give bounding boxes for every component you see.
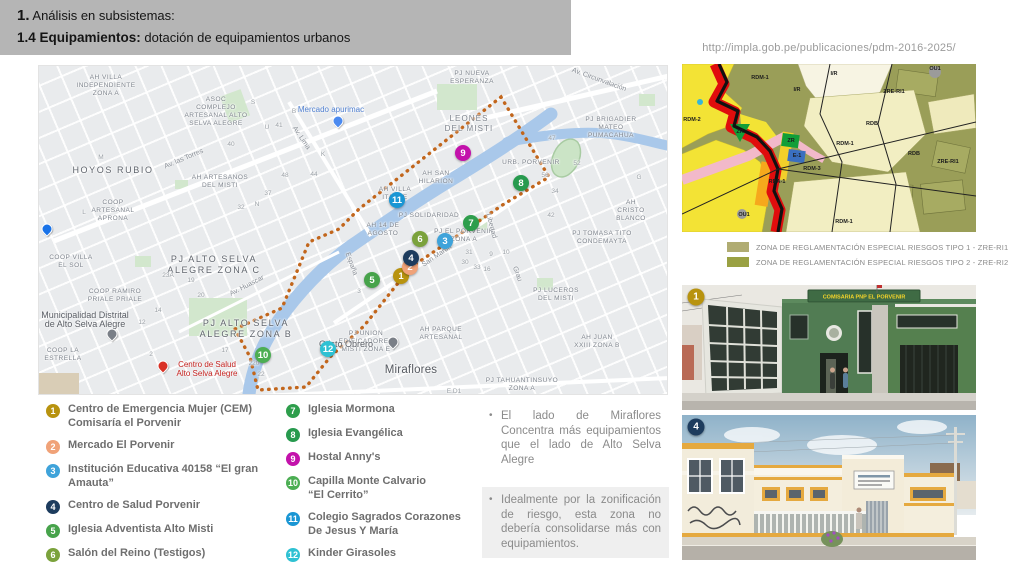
map-area-label: 14	[154, 307, 161, 315]
map-marker-6: 6	[412, 231, 428, 247]
legend-item-number: 3	[46, 464, 60, 478]
zoning-zone-label: E-1	[793, 153, 802, 159]
map-area-label: COOP VILLA EL SOL	[49, 254, 93, 270]
map-area-label: 44	[310, 171, 317, 179]
legend-item: 12Kinder Girasoles	[286, 547, 481, 562]
map-area-label: PJ LUCEROS DEL MISTI	[533, 287, 579, 303]
map-poi-label: Centro de Salud Alto Selva Alegre	[177, 360, 238, 378]
map-area-label: 19	[187, 277, 194, 285]
map-area-label: N	[255, 201, 260, 209]
header-number-1: 1.	[17, 7, 30, 24]
map-area-label: PJ SOLIDARIDAD	[399, 212, 459, 220]
map-area-label: 3	[357, 288, 361, 296]
map-marker-5: 5	[364, 272, 380, 288]
zoning-legend-text: ZONA DE REGLAMENTACIÓN ESPECIAL RIESGOS …	[756, 243, 1008, 252]
map-area-label: Miraflores	[385, 364, 437, 376]
map-poi-label: Mercado apurimac	[298, 105, 364, 114]
map-area-label: 41	[275, 122, 282, 130]
map-area-label: 34	[551, 188, 558, 196]
legend-item-number: 1	[46, 404, 60, 418]
photo-centro-salud-image	[682, 415, 976, 560]
zoning-legend-swatch	[727, 257, 749, 267]
zoning-zone-label: OU1	[929, 66, 940, 72]
map-area-label: 42	[547, 212, 554, 220]
zoning-zone-label: I/R	[830, 71, 837, 77]
city-map: AH VILLA INDEPENDIENTE ZONA AASOC COMPLE…	[38, 65, 668, 395]
map-area-label: PJ ALTO SELVA ALEGRE ZONA C	[167, 254, 260, 276]
zoning-zone-label: RDM-1	[835, 219, 852, 225]
legend-item-text: Capilla Monte Calvario“El Cerrito”	[308, 475, 426, 502]
map-area-label: PJ ALTO SELVA ALEGRE ZONA B	[200, 318, 293, 340]
legend-item-number: 12	[286, 548, 300, 562]
zone-pale-bottom	[786, 172, 920, 232]
zoning-zone-label: RDB	[866, 121, 878, 127]
zoning-legend: ZONA DE REGLAMENTACIÓN ESPECIAL RIESGOS …	[727, 242, 1008, 272]
zoning-zone-label: RDM-1	[836, 141, 853, 147]
legend-item: 4Centro de Salud Porvenir	[46, 499, 281, 514]
map-area-label: AH VILLA INDEPENDIENTE ZONA A	[76, 74, 135, 98]
note-bullet: •Idealmente por la zonificación de riesg…	[482, 487, 669, 558]
zoning-zone-label: RDM-2	[683, 117, 700, 123]
header-title-1: Análisis en subsistemas:	[30, 8, 175, 23]
zoning-zone-label: RDM-3	[803, 166, 820, 172]
header-title-2: dotación de equipamientos urbanos	[141, 30, 351, 45]
map-area-label: E.D1	[447, 388, 461, 395]
map-area-label: 12	[138, 319, 145, 327]
legend-item: 8Iglesia Evangélica	[286, 427, 481, 442]
photo-comisaria-image: COMISARIA PNP EL PORVENIR	[682, 285, 976, 410]
legend-item: 10Capilla Monte Calvario“El Cerrito”	[286, 475, 481, 502]
legend-item-text: Iglesia Evangélica	[308, 427, 403, 442]
map-poi-label: Municipalidad Distrital de Alto Selva Al…	[41, 311, 129, 329]
legend-item-number: 6	[46, 548, 60, 562]
legend-item-text: Colegio Sagrados CorazonesDe Jesus Y Mar…	[308, 511, 461, 538]
legend-item-text: Institución Educativa 40158 “El granAmau…	[68, 463, 258, 490]
photo-badge-1: 1	[688, 289, 705, 306]
legend-item-text: Kinder Girasoles	[308, 547, 396, 562]
map-area-label: 10	[502, 249, 509, 257]
map-area-label: PJ BRIGADIER MATEO PUMACAHUA	[585, 116, 636, 140]
map-area-label: 16	[483, 266, 490, 274]
map-area-label: B	[292, 108, 296, 116]
map-area-label: AH 14 DE AGOSTO	[367, 222, 400, 238]
zoning-zone-label: ZRE-RI1	[937, 159, 958, 165]
map-area-label: 40	[227, 141, 234, 149]
legend-item-number: 8	[286, 428, 300, 442]
zoning-legend-row: ZONA DE REGLAMENTACIÓN ESPECIAL RIESGOS …	[727, 257, 1008, 267]
legend-column-1: 1Centro de Emergencia Mujer (CEM)Comisar…	[46, 403, 281, 571]
legend-item-text: Iglesia Adventista Alto Misti	[68, 523, 213, 538]
map-area-label: S	[251, 99, 255, 107]
map-area-label: 56	[541, 172, 548, 180]
legend-item: 11Colegio Sagrados CorazonesDe Jesus Y M…	[286, 511, 481, 538]
note-bullet: •El lado de Miraflores Concentra más equ…	[482, 403, 669, 474]
photo-badge-4: 4	[688, 419, 705, 436]
legend-item-text: Iglesia Mormona	[308, 403, 395, 418]
legend-item: 1Centro de Emergencia Mujer (CEM)Comisar…	[46, 403, 281, 430]
map-area-label: AH PARQUE ARTESANAL	[419, 326, 462, 342]
zoning-basemap	[682, 64, 976, 232]
map-area-label: PJ TAHUANTINSUYO ZONA A	[486, 377, 558, 393]
legend-item: 2Mercado El Porvenir	[46, 439, 281, 454]
header-line-1: 1. Análisis en subsistemas:	[17, 7, 571, 24]
legend-column-2: 7Iglesia Mormona8Iglesia Evangélica9Host…	[286, 403, 481, 571]
map-marker-4: 4	[403, 250, 419, 266]
map-area-label: 33	[473, 264, 480, 272]
map-edge-block	[39, 373, 79, 395]
header-number-2: 1.4 Equipamientos:	[17, 30, 141, 45]
map-marker-7: 7	[463, 215, 479, 231]
map-area-label: COOP LA ESTRELLA	[44, 347, 81, 363]
map-area-label: K	[321, 151, 325, 159]
notes-panel: •El lado de Miraflores Concentra más equ…	[482, 403, 669, 571]
legend-item-number: 4	[46, 500, 60, 514]
map-area-label: 9	[489, 251, 493, 259]
map-area-label: U	[265, 124, 270, 132]
map-area-label: AH CRISTO BLANCO	[613, 199, 649, 223]
legend-item-text: Mercado El Porvenir	[68, 439, 174, 454]
map-area-label: 48	[281, 172, 288, 180]
header-line-2: 1.4 Equipamientos: dotación de equipamie…	[17, 30, 571, 45]
source-url-link[interactable]: http://impla.gob.pe/publicaciones/pdm-20…	[682, 42, 976, 54]
map-area-label: M	[98, 154, 103, 162]
photo-centro-salud	[682, 415, 976, 560]
map-marker-8: 8	[513, 175, 529, 191]
legend-item-number: 5	[46, 524, 60, 538]
map-area-label: COOP RAMIRO PRIALE PRIALE	[88, 288, 143, 304]
legend-item: 6Salón del Reino (Testigos)	[46, 547, 281, 562]
zoning-legend-row: ZONA DE REGLAMENTACIÓN ESPECIAL RIESGOS …	[727, 242, 1008, 252]
header: 1. Análisis en subsistemas: 1.4 Equipami…	[0, 0, 571, 55]
legend-item-text: Centro de Salud Porvenir	[68, 499, 200, 514]
map-area-label: 37	[264, 190, 271, 198]
comisaria-sign-text: COMISARIA PNP EL PORVENIR	[823, 295, 906, 301]
map-area-label: 17	[221, 347, 228, 355]
map-area-label: 30	[461, 259, 468, 267]
zoning-zone-label: ZR	[736, 129, 743, 135]
legend-item-text: Centro de Emergencia Mujer (CEM)Comisarí…	[68, 403, 252, 430]
zone-cyan-dot	[697, 99, 703, 105]
legend-item: 3Institución Educativa 40158 “El granAma…	[46, 463, 281, 490]
map-area-label: AH ARTESANOS DEL MISTI	[192, 174, 248, 190]
map-marker-9: 9	[455, 145, 471, 161]
photo-comisaria: COMISARIA PNP EL PORVENIR	[682, 285, 976, 410]
map-area-label: ASOC COMPLEJO ARTESANAL ALTO SELVA ALEGR…	[184, 96, 247, 128]
map-area-label: G	[636, 174, 641, 182]
slide: 1. Análisis en subsistemas: 1.4 Equipami…	[0, 0, 1024, 576]
zoning-legend-text: ZONA DE REGLAMENTACIÓN ESPECIAL RIESGOS …	[756, 258, 1008, 267]
map-marker-10: 10	[255, 347, 271, 363]
legend-item-number: 9	[286, 452, 300, 466]
map-area-label: 52	[573, 160, 580, 168]
legend-item: 7Iglesia Mormona	[286, 403, 481, 418]
zoning-zone-label: RDM-1	[751, 75, 768, 81]
map-marker-11: 11	[389, 192, 405, 208]
legend-item-number: 7	[286, 404, 300, 418]
legend-item-text: Salón del Reino (Testigos)	[68, 547, 205, 562]
map-area-label: 47	[548, 135, 555, 143]
zoning-zone-label: I/R	[793, 87, 800, 93]
legend-item-number: 11	[286, 512, 300, 526]
map-area-label: L	[82, 209, 86, 217]
map-marker-3: 3	[437, 233, 453, 249]
map-area-label: PJ NUEVA ESPERANZA	[450, 70, 494, 86]
map-area-label: 32	[237, 204, 244, 212]
legend-item: 9Hostal Anny's	[286, 451, 481, 466]
zoning-map: RDM-1I/RI/RRDM-2ZRZRE-1RDM-3RDA-1OU1RDM-…	[682, 64, 976, 232]
map-area-label: 31	[465, 249, 472, 257]
zoning-zone-label: OU1	[738, 212, 749, 218]
map-area-label: 2	[149, 351, 153, 359]
zoning-zone-label: RDB	[908, 151, 920, 157]
legend-item-text: Hostal Anny's	[308, 451, 381, 466]
zoning-zone-label: ZR	[787, 138, 794, 144]
zoning-zone-label: RDA-1	[769, 179, 786, 185]
map-area-label: 22	[257, 371, 264, 379]
map-area-label: URB. PORVENIR	[502, 159, 560, 167]
legend-item: 5Iglesia Adventista Alto Misti	[46, 523, 281, 538]
map-area-label: COOP ARTESANAL APRONA	[91, 199, 134, 223]
map-marker-12: 12	[320, 341, 336, 357]
map-area-label: 20	[197, 292, 204, 300]
map-area-label: PJ TOMASA TITO CONDEMAYTA	[572, 230, 632, 246]
legend-item-number: 10	[286, 476, 300, 490]
map-area-label: AH SAN HILARION	[419, 170, 454, 186]
map-area-label: LEONES DEL MISTI	[445, 114, 494, 134]
zoning-zone-label: ZRE-RI1	[883, 89, 904, 95]
map-area-label: HOYOS RUBIO	[72, 165, 153, 176]
zoning-legend-swatch	[727, 242, 749, 252]
map-area-label: 23A	[162, 272, 174, 280]
map-area-label: AH JUAN XXIII ZONA B	[574, 334, 620, 350]
legend-item-number: 2	[46, 440, 60, 454]
